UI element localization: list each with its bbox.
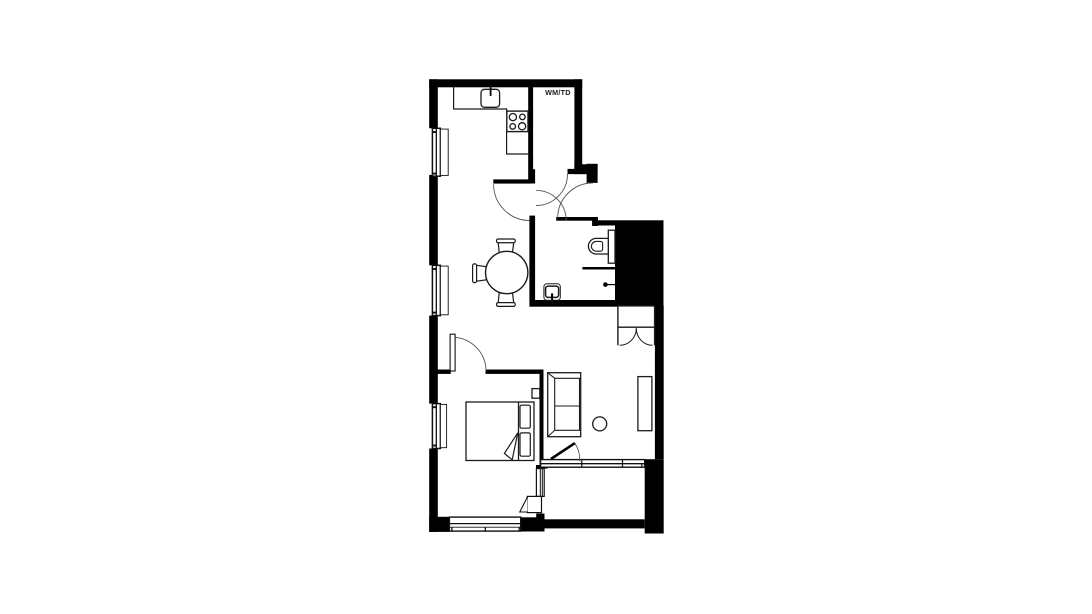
svg-text:WM/TD: WM/TD <box>545 88 571 97</box>
